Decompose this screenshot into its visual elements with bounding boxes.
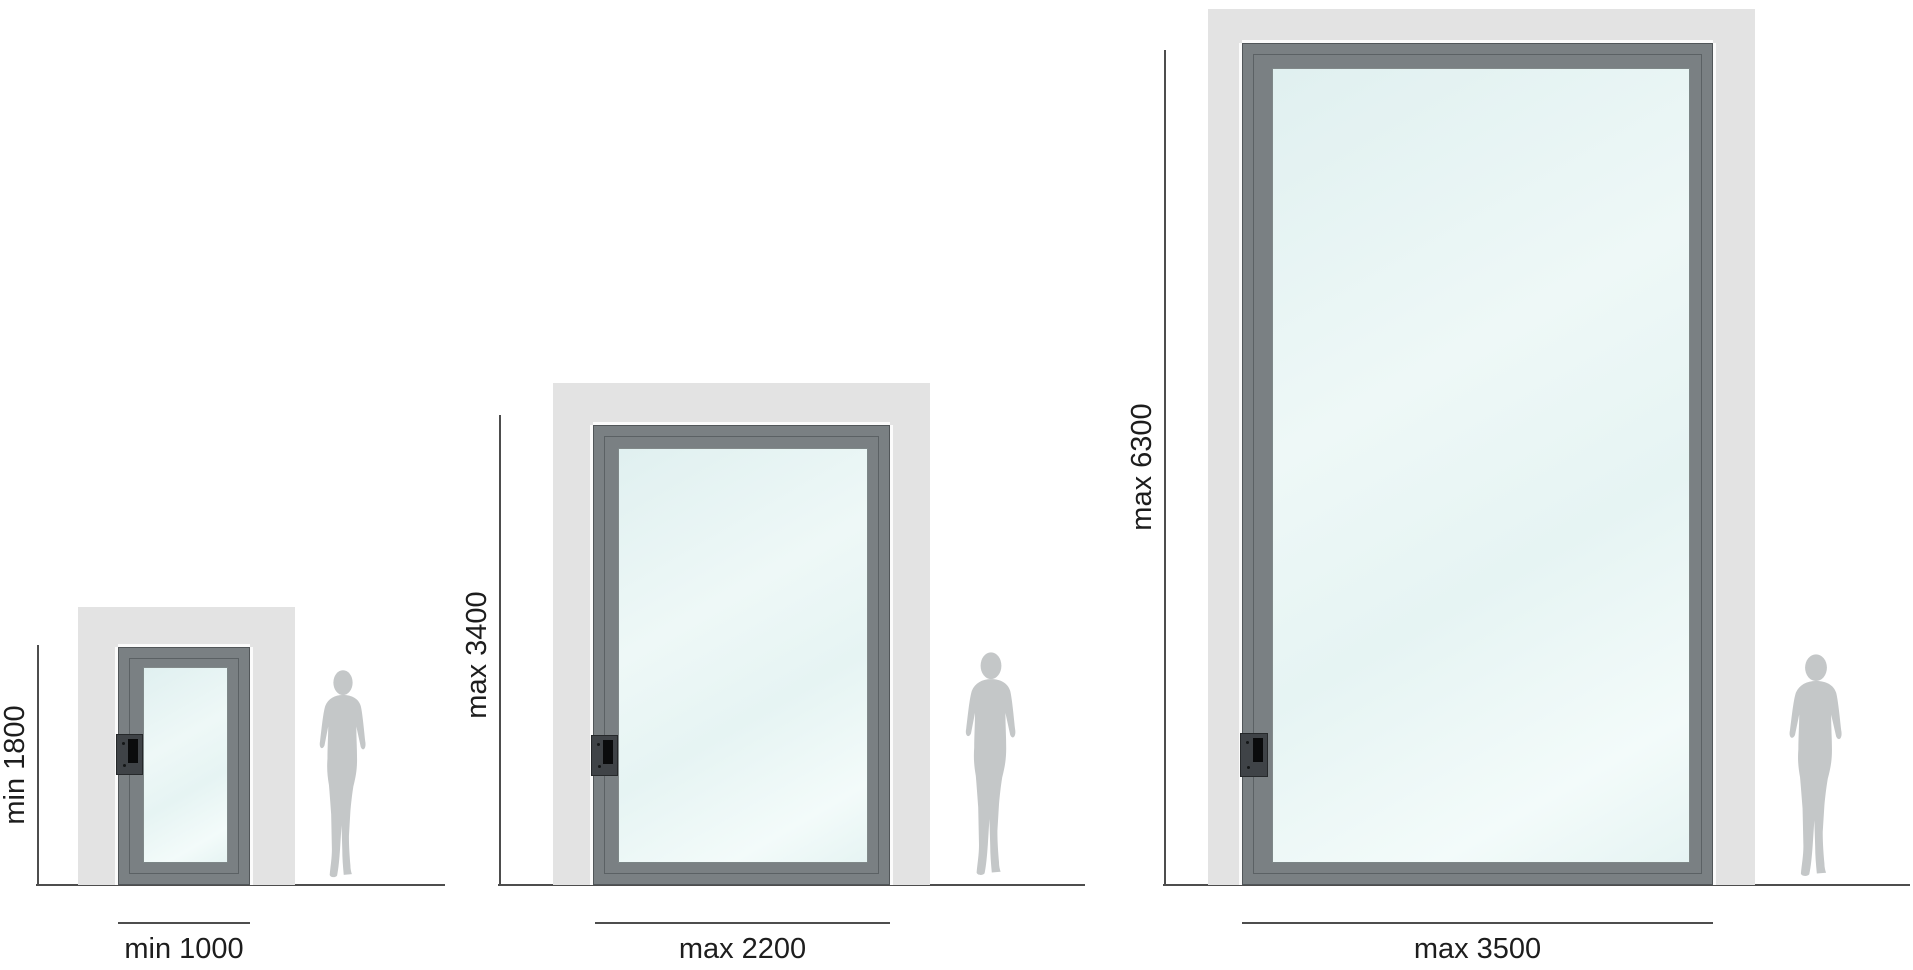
width-label: max 3500	[1242, 934, 1713, 964]
person-silhouette	[951, 650, 1031, 878]
lock-screw-icon	[123, 764, 126, 767]
width-dimension-line	[595, 922, 890, 924]
lock-slot-icon	[128, 739, 138, 763]
lock-slot-icon	[1253, 738, 1263, 762]
lock-screw-icon	[122, 742, 125, 745]
height-dimension-line	[37, 645, 39, 885]
person-silhouette	[306, 668, 380, 880]
height-dimension-line	[1164, 50, 1166, 885]
height-dimension-line	[499, 415, 501, 885]
height-label: max 3400	[462, 505, 492, 805]
lock-screw-icon	[1246, 741, 1249, 744]
door-size-comparison-diagram: min 1800 min 1000 max 3400 max 2200	[0, 0, 1913, 970]
lock-slot-icon	[603, 740, 613, 764]
door-frame	[1242, 43, 1713, 885]
width-dimension-line	[1242, 922, 1713, 924]
lock-screw-icon	[598, 765, 601, 768]
height-label: min 1800	[0, 645, 30, 885]
door-frame	[118, 647, 250, 885]
person-silhouette	[1774, 652, 1858, 879]
door-lock	[1240, 733, 1268, 777]
glass-panel	[1272, 68, 1690, 863]
door-lock	[591, 735, 618, 776]
width-label: min 1000	[98, 934, 270, 964]
lock-screw-icon	[1247, 766, 1250, 769]
height-label: max 6300	[1127, 317, 1157, 617]
glass-panel	[143, 667, 228, 863]
width-label: max 2200	[595, 934, 890, 964]
door-frame	[593, 425, 890, 885]
width-dimension-line	[118, 922, 250, 924]
lock-screw-icon	[597, 743, 600, 746]
glass-panel	[618, 448, 868, 863]
door-lock	[116, 734, 143, 775]
